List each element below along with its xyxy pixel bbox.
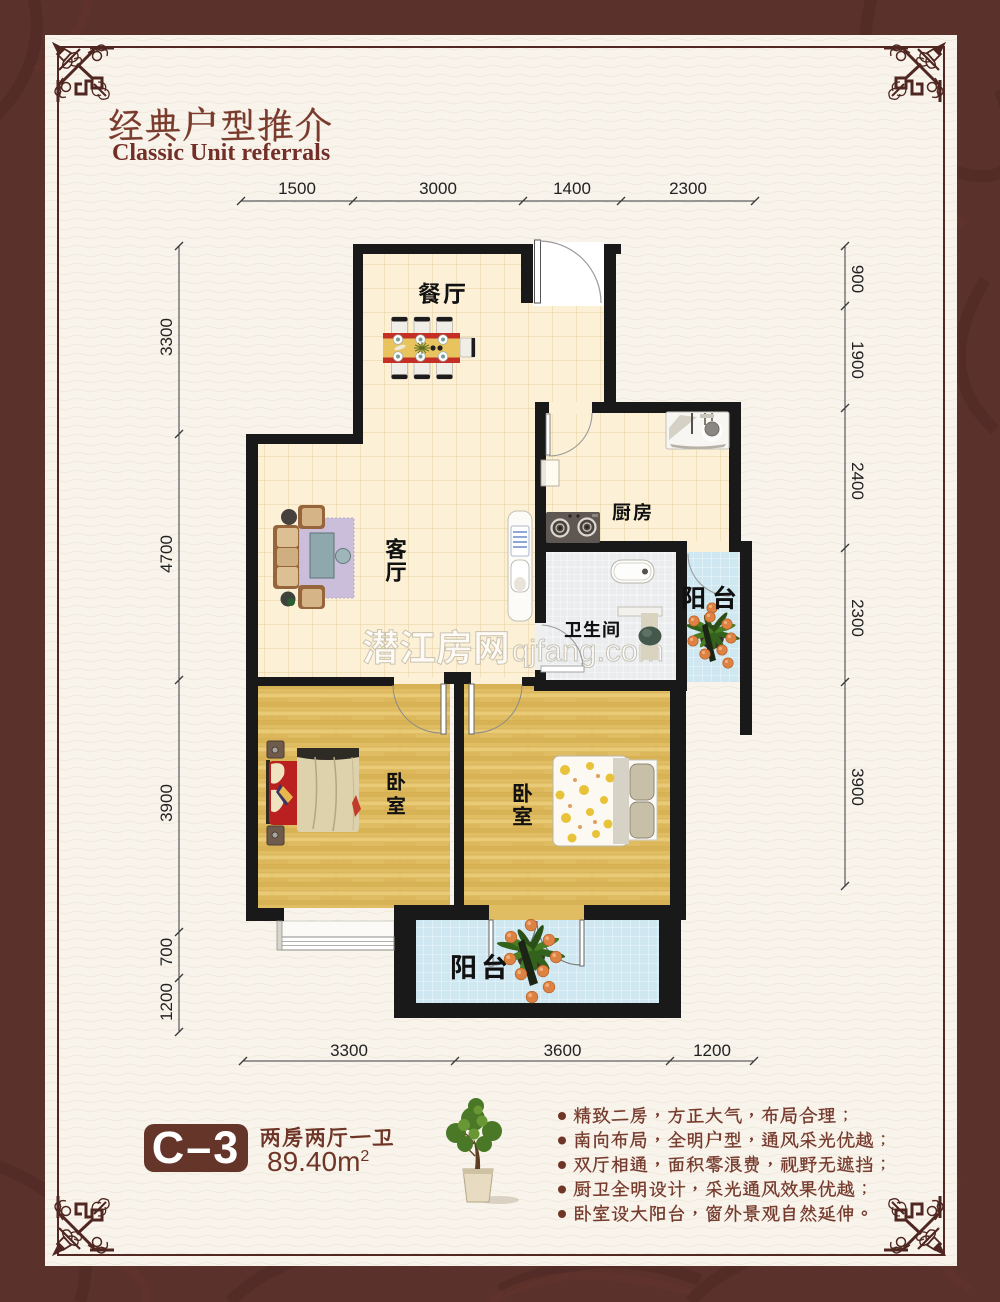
svg-text:2300: 2300 (848, 599, 867, 637)
svg-text:89.40m2: 89.40m2 (267, 1146, 369, 1177)
svg-text:3900: 3900 (848, 768, 867, 806)
svg-text:1900: 1900 (848, 341, 867, 379)
svg-text:3900: 3900 (157, 784, 176, 822)
svg-text:1200: 1200 (157, 983, 176, 1021)
svg-text:900: 900 (848, 265, 867, 293)
svg-text:3600: 3600 (544, 1041, 582, 1060)
svg-text:3300: 3300 (157, 318, 176, 356)
svg-text:700: 700 (157, 938, 176, 966)
svg-text:C–3: C–3 (152, 1122, 241, 1173)
svg-text:3000: 3000 (419, 179, 457, 198)
svg-text:3300: 3300 (330, 1041, 368, 1060)
svg-text:Classic Unit referrals: Classic Unit referrals (112, 140, 330, 166)
svg-text:1500: 1500 (278, 179, 316, 198)
svg-text:1400: 1400 (553, 179, 591, 198)
svg-text:1200: 1200 (693, 1041, 731, 1060)
svg-text:2400: 2400 (848, 462, 867, 500)
svg-text:2300: 2300 (669, 179, 707, 198)
svg-text:4700: 4700 (157, 535, 176, 573)
